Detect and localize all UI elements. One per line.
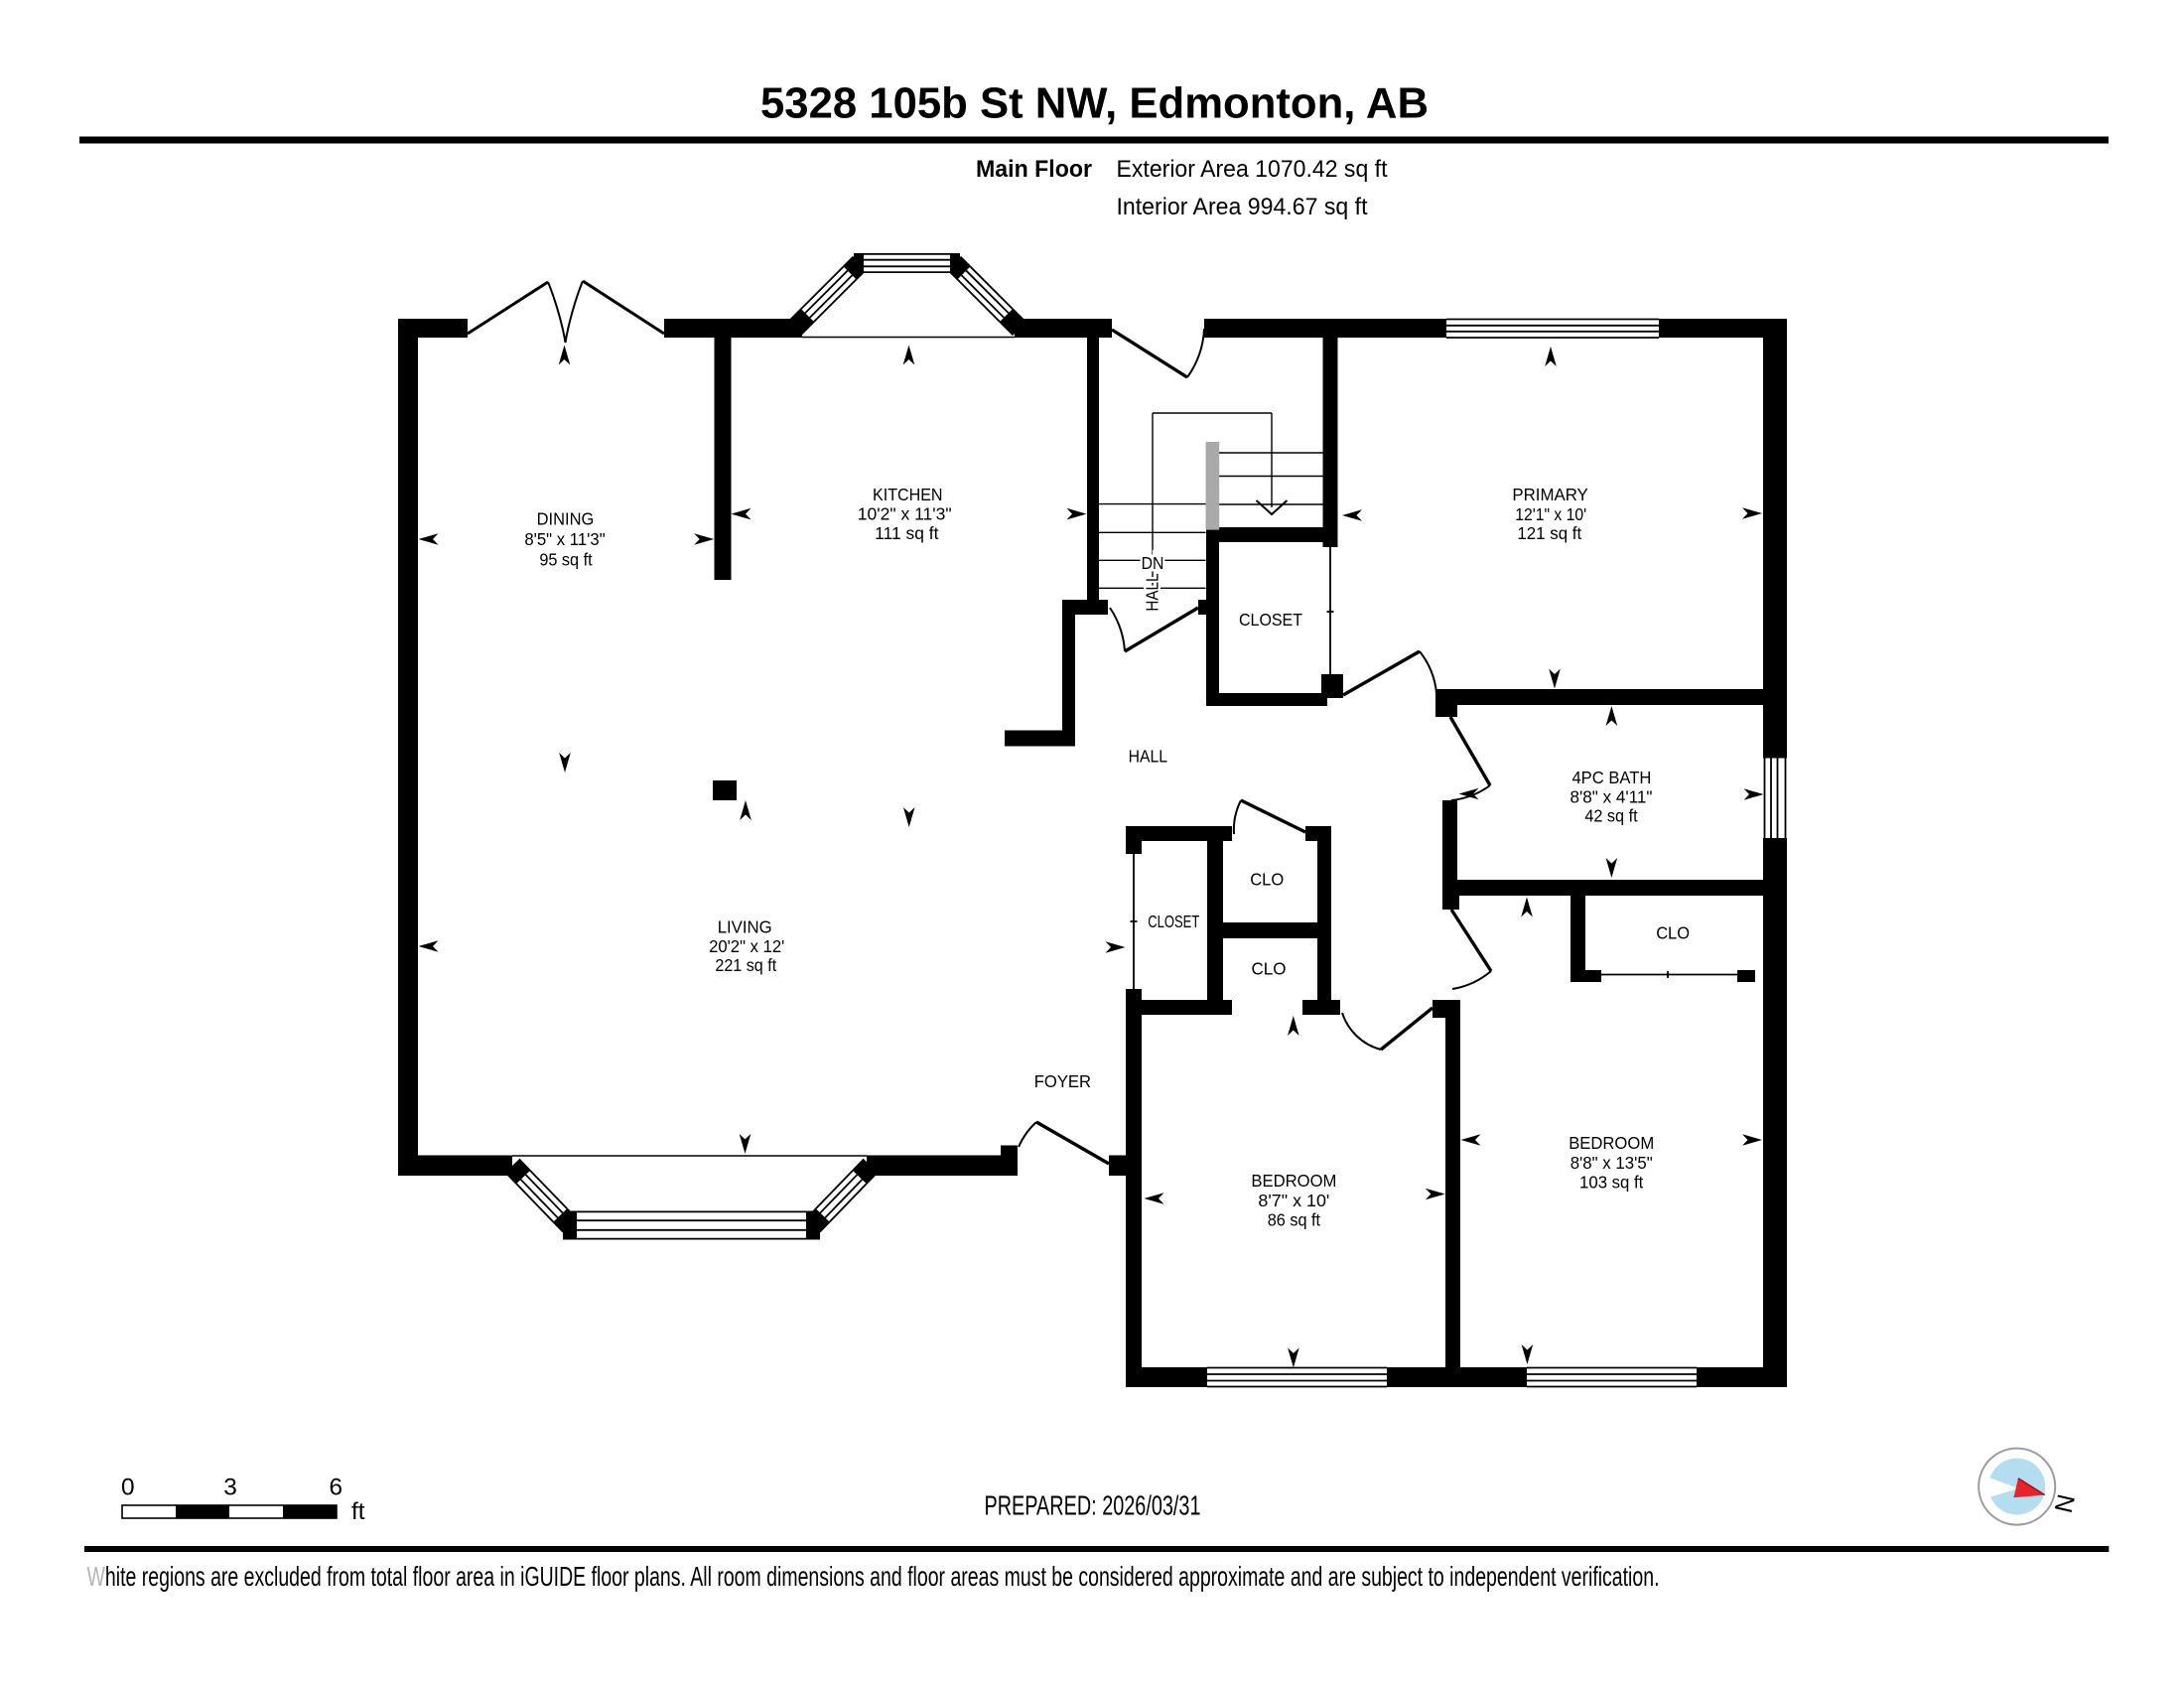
- svg-text:DN: DN: [1142, 553, 1164, 573]
- svg-text:BEDROOM: BEDROOM: [1251, 1171, 1336, 1191]
- svg-text:BEDROOM: BEDROOM: [1569, 1133, 1654, 1153]
- svg-text:PREPARED: 2026/03/31: PREPARED: 2026/03/31: [985, 1490, 1201, 1521]
- svg-text:CLOSET: CLOSET: [1239, 610, 1302, 630]
- svg-text:5328 105b St NW, Edmonton, AB: 5328 105b St NW, Edmonton, AB: [760, 79, 1429, 128]
- svg-text:6: 6: [330, 1475, 343, 1501]
- svg-text:111 sq ft: 111 sq ft: [875, 523, 939, 543]
- svg-text:FOYER: FOYER: [1034, 1071, 1091, 1091]
- svg-text:CLO: CLO: [1656, 923, 1690, 943]
- svg-text:103 sq ft: 103 sq ft: [1579, 1172, 1644, 1192]
- svg-text:121 sq ft: 121 sq ft: [1517, 523, 1581, 543]
- svg-text:8'8" x 4'11": 8'8" x 4'11": [1570, 786, 1653, 806]
- svg-text:4PC BATH: 4PC BATH: [1571, 768, 1651, 787]
- svg-text:CLOSET: CLOSET: [1148, 912, 1199, 931]
- svg-text:8'8" x 13'5": 8'8" x 13'5": [1570, 1153, 1653, 1173]
- svg-text:ft: ft: [351, 1498, 365, 1525]
- svg-text:HALL: HALL: [1143, 574, 1162, 612]
- svg-text:3: 3: [223, 1475, 237, 1501]
- svg-text:CLO: CLO: [1252, 959, 1287, 979]
- svg-text:Exterior Area 1070.42 sq ft: Exterior Area 1070.42 sq ft: [1117, 156, 1388, 183]
- svg-text:CLO: CLO: [1250, 870, 1284, 890]
- svg-text:White regions are excluded fro: White regions are excluded from total fl…: [87, 1561, 1660, 1592]
- svg-text:20'2" x 12': 20'2" x 12': [709, 936, 784, 956]
- svg-text:12'1" x 10': 12'1" x 10': [1515, 504, 1586, 524]
- svg-text:8'5" x 11'3": 8'5" x 11'3": [524, 529, 605, 549]
- svg-text:86 sq ft: 86 sq ft: [1268, 1210, 1321, 1230]
- svg-text:221 sq ft: 221 sq ft: [715, 955, 776, 975]
- svg-text:PRIMARY: PRIMARY: [1512, 485, 1588, 504]
- svg-text:10'2" x 11'3": 10'2" x 11'3": [858, 504, 952, 524]
- svg-text:42 sq ft: 42 sq ft: [1584, 806, 1638, 826]
- svg-text:HALL: HALL: [1129, 747, 1167, 767]
- svg-text:8'7" x 10': 8'7" x 10': [1258, 1191, 1329, 1210]
- svg-text:0: 0: [121, 1475, 135, 1501]
- svg-text:DINING: DINING: [537, 509, 595, 529]
- svg-text:95 sq ft: 95 sq ft: [539, 550, 593, 570]
- svg-text:KITCHEN: KITCHEN: [873, 485, 943, 504]
- svg-text:Interior Area 994.67 sq ft: Interior Area 994.67 sq ft: [1117, 194, 1368, 220]
- svg-text:Main Floor: Main Floor: [976, 156, 1092, 183]
- svg-text:LIVING: LIVING: [718, 917, 772, 937]
